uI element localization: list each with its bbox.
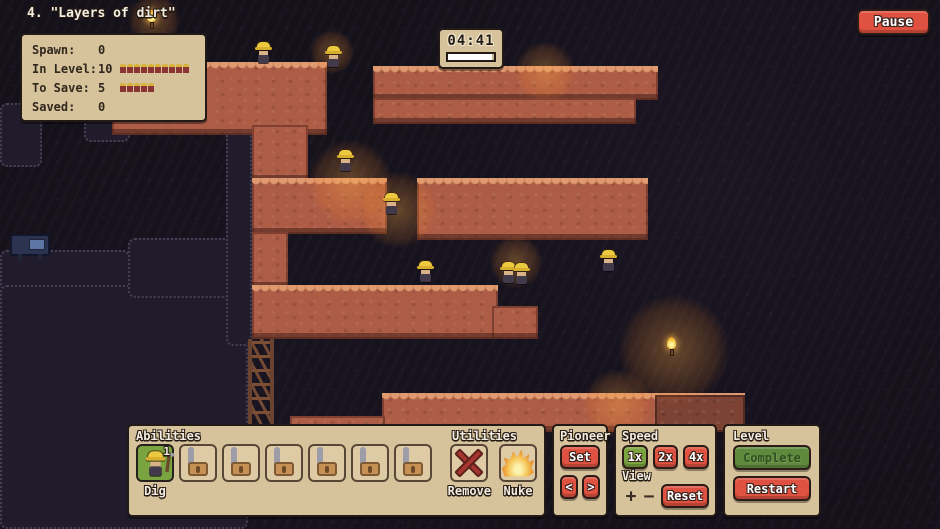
remove-x-icon xyxy=(454,448,484,478)
stat-row-saved: Saved: 0 xyxy=(32,97,197,116)
pioneer-set-button[interactable]: Set xyxy=(560,445,600,469)
lock-icon xyxy=(274,450,294,476)
lock-icon xyxy=(403,450,423,476)
stat-value: 10 xyxy=(98,62,120,76)
mini-miner-icon xyxy=(155,64,161,73)
speed-panel: Speed 1x 2x 4x View + − Reset xyxy=(614,424,717,517)
bottom-bar: Abilities Utilities 1 Dig xyxy=(127,424,821,517)
speed-buttons: 1x 2x 4x xyxy=(622,445,709,469)
view-title: View xyxy=(622,469,709,483)
timer-progress-fill xyxy=(448,54,492,60)
level-panel: Level Complete Restart xyxy=(723,424,821,517)
mini-miner-icon xyxy=(183,64,189,73)
mini-miner-icon xyxy=(169,64,175,73)
mini-miner-icon xyxy=(134,64,140,73)
speed-4x-button[interactable]: 4x xyxy=(683,445,709,469)
miner-body xyxy=(328,59,339,67)
dig-count-badge: 1 xyxy=(163,445,170,458)
miner-hat-brim xyxy=(325,51,342,54)
miner-character[interactable] xyxy=(600,250,617,271)
light-glow xyxy=(515,42,575,102)
miner-character[interactable] xyxy=(337,150,354,171)
torch xyxy=(667,337,676,356)
mini-miner-icon xyxy=(162,64,168,73)
dirt-platform xyxy=(252,125,308,181)
nuke-label: Nuke xyxy=(504,484,533,498)
nuke-explosion-icon xyxy=(502,450,534,477)
mini-miner-icon xyxy=(127,83,133,92)
level-restart-button[interactable]: Restart xyxy=(733,476,811,501)
rock-formation xyxy=(226,118,252,346)
torch-stick xyxy=(670,349,674,356)
ability-slot-dig[interactable]: 1 xyxy=(136,444,174,482)
speed-2x-button[interactable]: 2x xyxy=(653,445,679,469)
miner-body xyxy=(420,274,431,282)
stat-value: 5 xyxy=(98,81,120,95)
miner-character[interactable] xyxy=(255,42,272,63)
utility-slot-remove[interactable] xyxy=(450,444,488,482)
pioneer-next-button[interactable]: > xyxy=(582,475,600,499)
machine-prop xyxy=(10,234,50,256)
stat-row-spawn: Spawn: 0 xyxy=(32,40,197,59)
miner-hat-brim xyxy=(337,155,354,158)
mini-miner-icon xyxy=(176,64,182,73)
dirt-platform xyxy=(417,178,648,240)
timer-value: 04:41 xyxy=(440,33,502,49)
abilities-panel: Abilities Utilities 1 Dig xyxy=(127,424,546,517)
mini-miner-icon xyxy=(127,64,133,73)
ability-slot-locked[interactable] xyxy=(265,444,303,482)
ability-slots-row: 1 Dig xyxy=(136,444,537,498)
ability-slot-locked[interactable] xyxy=(308,444,346,482)
zoom-in-button[interactable]: + xyxy=(622,486,640,506)
pioneer-arrows: < > xyxy=(560,475,600,499)
view-reset-button[interactable]: Reset xyxy=(661,484,709,508)
mini-miner-icon xyxy=(120,64,126,73)
mini-miner-icon xyxy=(148,64,154,73)
nuke-slot-group: Nuke xyxy=(499,444,537,498)
mini-miner-icon xyxy=(148,83,154,92)
miner-character[interactable] xyxy=(513,263,530,284)
pioneer-title: Pioneer xyxy=(560,429,600,443)
mini-miner-icon xyxy=(134,83,140,92)
stat-value: 0 xyxy=(98,43,120,57)
ability-slot-locked[interactable] xyxy=(351,444,389,482)
miner-hat-brim xyxy=(255,47,272,50)
miner-body xyxy=(340,163,351,171)
miner-dig-icon xyxy=(145,451,165,475)
miner-character[interactable] xyxy=(325,46,342,67)
pause-button[interactable]: Pause xyxy=(857,9,930,35)
level-title: 4. "Layers of dirt" xyxy=(27,6,176,21)
stat-row-in-level: In Level: 10 xyxy=(32,59,197,78)
dirt-platform xyxy=(252,232,288,288)
lock-icon xyxy=(317,450,337,476)
miner-hat-brim xyxy=(383,198,400,201)
speed-1x-button[interactable]: 1x xyxy=(622,445,648,469)
mini-miner-icon xyxy=(141,64,147,73)
level-complete-button[interactable]: Complete xyxy=(733,445,811,470)
stat-icon-row xyxy=(120,83,197,92)
stat-label: Spawn: xyxy=(32,43,98,57)
zoom-out-button[interactable]: − xyxy=(640,486,658,506)
pioneer-prev-button[interactable]: < xyxy=(560,475,578,499)
stat-row-to-save: To Save: 5 xyxy=(32,78,197,97)
torch-stick xyxy=(150,22,154,29)
miner-hat-brim xyxy=(417,266,434,269)
dig-label: Dig xyxy=(144,484,166,498)
view-controls: + − Reset xyxy=(622,484,709,508)
utility-slot-nuke[interactable] xyxy=(499,444,537,482)
stat-label: Saved: xyxy=(32,100,98,114)
stat-label: In Level: xyxy=(32,62,98,76)
miner-body xyxy=(386,206,397,214)
stat-label: To Save: xyxy=(32,81,98,95)
game-screen: 4. "Layers of dirt" Spawn: 0 In Level: 1… xyxy=(0,0,940,529)
dirt-platform xyxy=(252,285,498,339)
ability-slot-locked[interactable] xyxy=(394,444,432,482)
lock-icon xyxy=(231,450,251,476)
mini-miner-icon xyxy=(141,83,147,92)
ability-slot-locked[interactable] xyxy=(179,444,217,482)
timer-panel: 04:41 xyxy=(438,28,504,69)
pioneer-panel: Pioneer Set < > xyxy=(552,424,608,517)
level-title-header: Level xyxy=(733,429,811,443)
stat-icon-row xyxy=(120,64,197,73)
lock-icon xyxy=(360,450,380,476)
miner-hat-brim xyxy=(600,255,617,258)
remove-slot-group: Remove xyxy=(448,444,491,498)
miner-character[interactable] xyxy=(417,261,434,282)
miner-body xyxy=(516,276,527,284)
dirt-platform xyxy=(373,98,636,124)
mini-miner-icon xyxy=(120,83,126,92)
torch-flame-icon xyxy=(667,337,676,349)
speed-title: Speed xyxy=(622,429,709,443)
miner-body xyxy=(603,263,614,271)
miner-hat-brim xyxy=(513,268,530,271)
scaffold-tower xyxy=(248,339,274,425)
stat-value: 0 xyxy=(98,100,120,114)
stats-panel: Spawn: 0 In Level: 10 To Save: 5 Saved: … xyxy=(20,33,207,122)
miner-character[interactable] xyxy=(383,193,400,214)
ability-slot-locked[interactable] xyxy=(222,444,260,482)
utilities-title: Utilities xyxy=(452,429,517,443)
dig-slot-group: 1 Dig xyxy=(136,444,174,498)
miner-body xyxy=(258,55,269,63)
lock-icon xyxy=(188,450,208,476)
timer-progress-bar xyxy=(446,52,496,62)
dirt-platform xyxy=(492,306,538,339)
remove-label: Remove xyxy=(448,484,491,498)
